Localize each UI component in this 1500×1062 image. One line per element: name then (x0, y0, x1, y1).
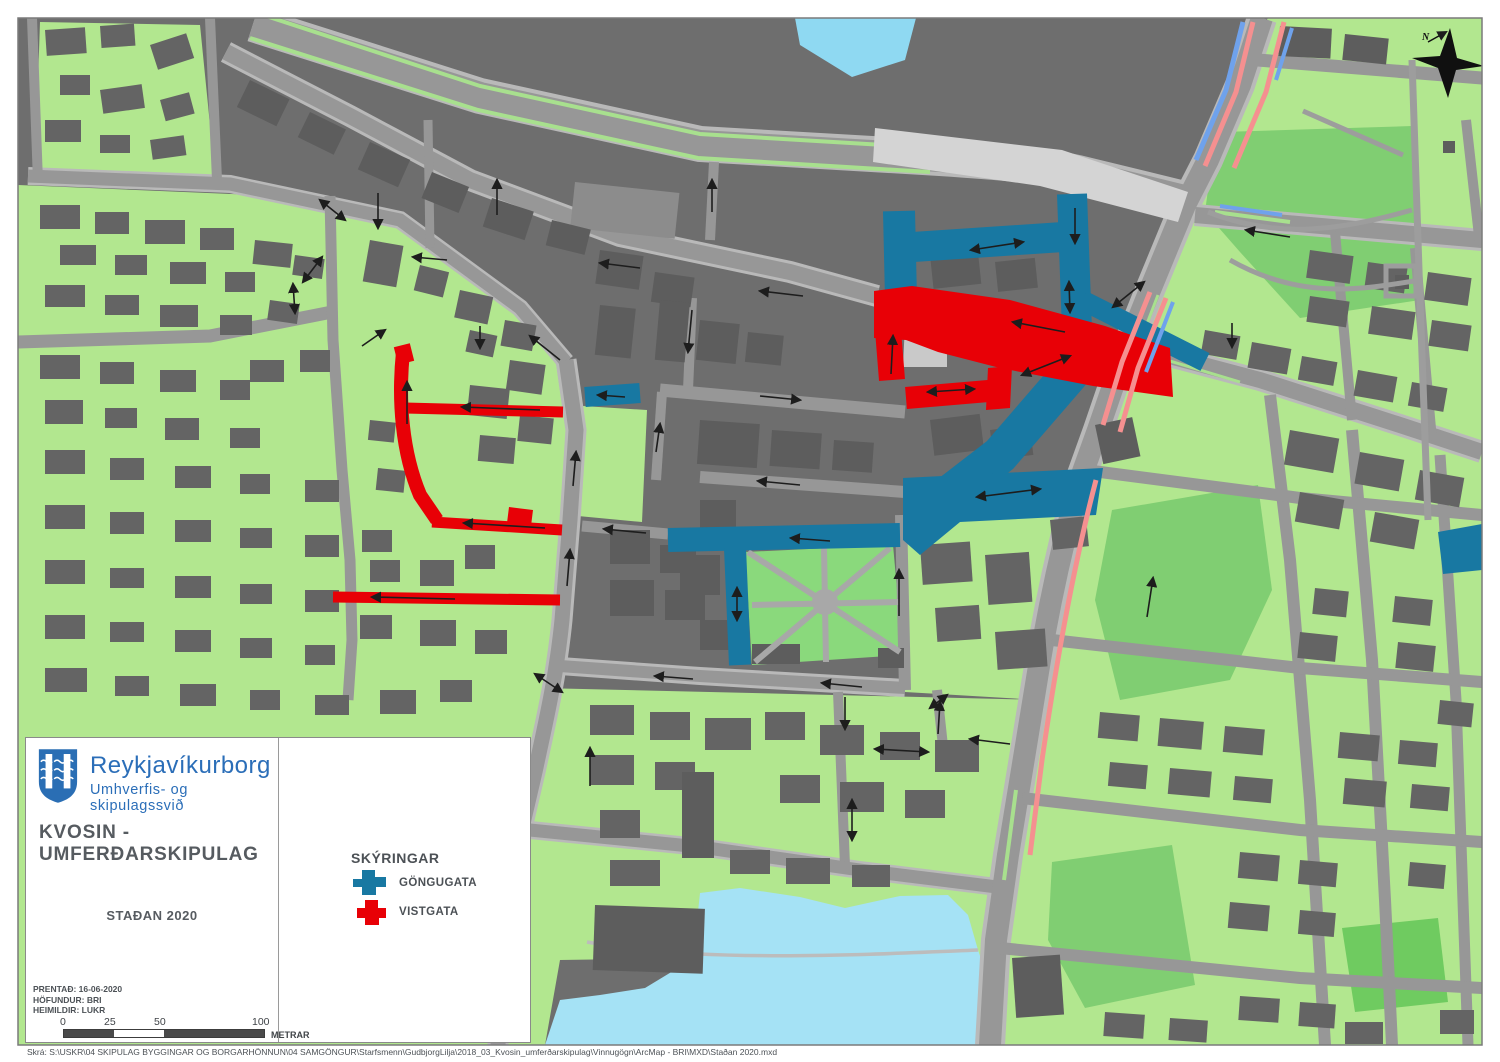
map-title: KVOSIN - UMFERÐARSKIPULAG (39, 822, 278, 866)
vistgata-swatch-icon (353, 898, 387, 926)
gongugata-swatch-icon (353, 870, 387, 896)
scale-segment (164, 1030, 264, 1037)
org-name: Reykjavíkurborg (90, 752, 278, 780)
scale-segment (64, 1030, 114, 1037)
print-info: PRENTAÐ: 16-06-2020 HÖFUNDUR: BRI HEIMIL… (33, 984, 122, 1016)
map-sheet: N Reykjavíkurborg Umhverfis- og skipulag… (0, 0, 1500, 1062)
scale-segment (114, 1030, 164, 1037)
print-date: PRENTAÐ: 16-06-2020 (33, 984, 122, 995)
scale-tick: 100 (252, 1016, 270, 1028)
scale-ticks: 0 25 50 100 (38, 1016, 273, 1028)
legend-column: SKÝRINGAR GÖNGUGATA VISTGATA (279, 738, 530, 1042)
legend-item-vistgata: VISTGATA (353, 898, 459, 926)
print-author: HÖFUNDUR: BRI (33, 995, 122, 1006)
file-path: Skrá: S:\USKR\04 SKIPULAG BYGGINGAR OG B… (27, 1047, 777, 1057)
scale-tick: 25 (104, 1016, 116, 1028)
org-department: Umhverfis- og skipulagssvið (90, 782, 278, 814)
scale-bar-graphic (63, 1029, 265, 1038)
reykjavik-coat-of-arms-logo (36, 746, 80, 806)
scale-bar: 0 25 50 100 METRAR (38, 1016, 273, 1042)
title-block: Reykjavíkurborg Umhverfis- og skipulagss… (26, 738, 279, 1042)
scale-tick: 50 (154, 1016, 166, 1028)
compass-north-label: N (1421, 32, 1430, 43)
legend-heading: SKÝRINGAR (351, 850, 440, 866)
status-label: STAÐAN 2020 (26, 908, 278, 923)
legend-panel: Reykjavíkurborg Umhverfis- og skipulagss… (25, 737, 531, 1043)
legend-item-gongugata: GÖNGUGATA (353, 870, 477, 896)
legend-label: GÖNGUGATA (399, 877, 477, 889)
legend-label: VISTGATA (399, 906, 459, 918)
brand-block: Reykjavíkurborg Umhverfis- og skipulagss… (36, 746, 278, 814)
scale-tick: 0 (60, 1016, 66, 1028)
print-source: HEIMILDIR: LUKR (33, 1005, 122, 1016)
